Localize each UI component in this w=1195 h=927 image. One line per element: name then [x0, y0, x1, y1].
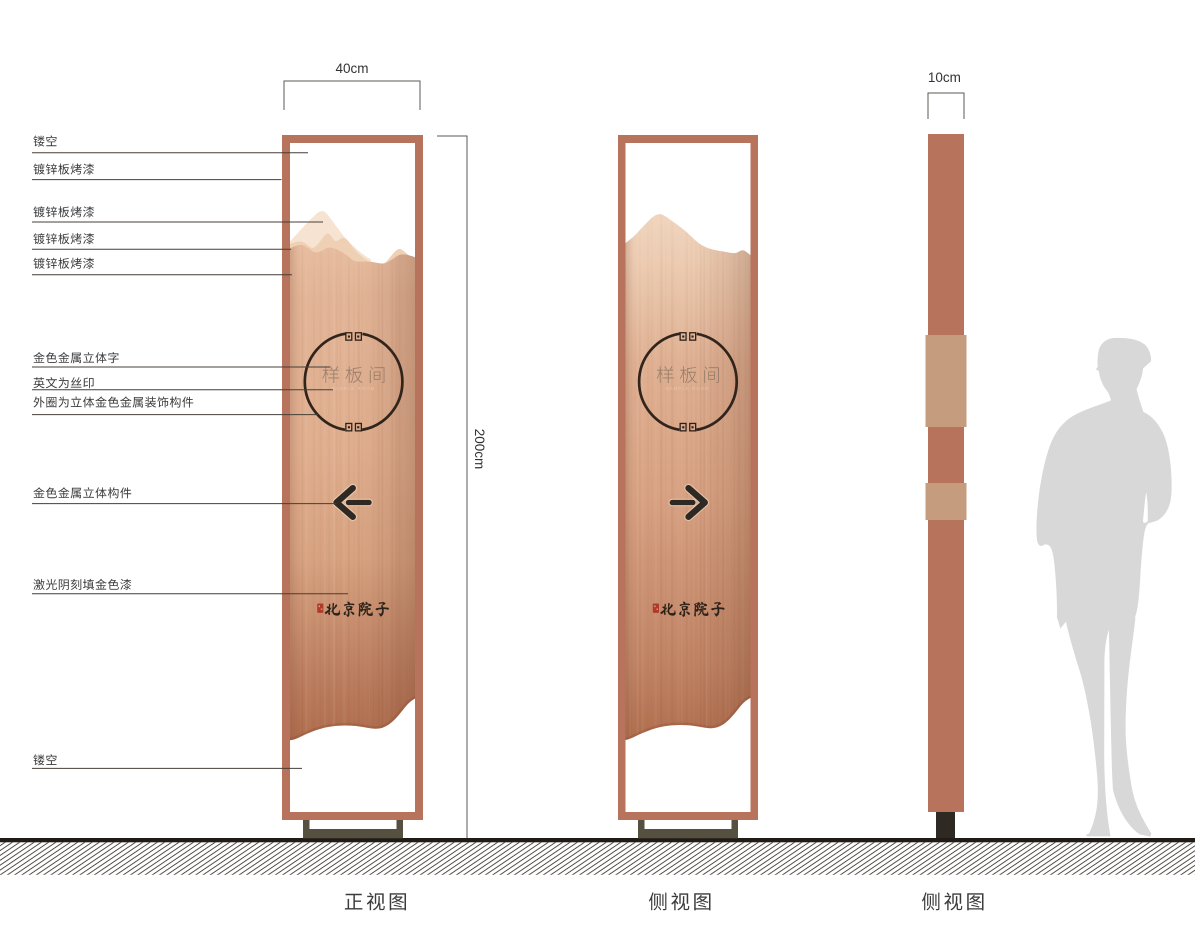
- svg-text:SAMPLE ROOM: SAMPLE ROOM: [331, 386, 375, 391]
- svg-text:40cm: 40cm: [335, 61, 368, 76]
- svg-text:200cm: 200cm: [472, 429, 487, 470]
- svg-text:10cm: 10cm: [928, 70, 961, 85]
- svg-text:SAMPLE ROOM: SAMPLE ROOM: [666, 386, 710, 391]
